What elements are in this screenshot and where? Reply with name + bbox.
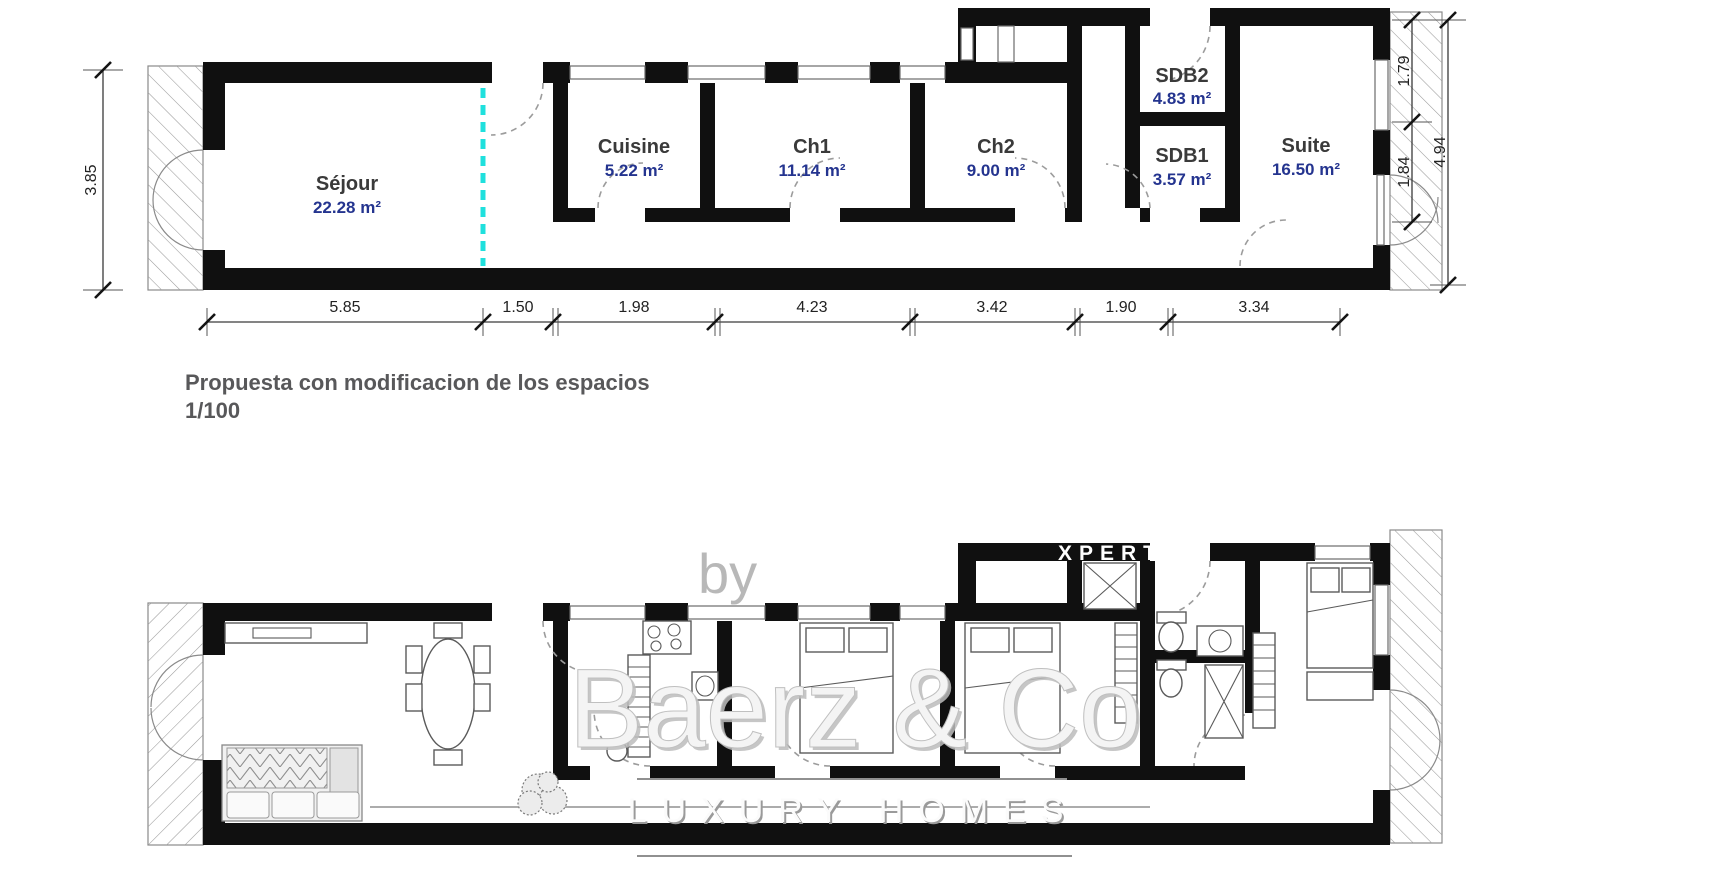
shower: [1084, 563, 1136, 609]
dim-494: 4.94: [1432, 136, 1449, 167]
sideboard: [225, 623, 367, 643]
dim-179: 1.79: [1396, 55, 1413, 86]
watermark-partner: XPERTS: [1058, 542, 1184, 565]
room-name-cuisine: Cuisine: [598, 136, 670, 158]
dim-423: 4.23: [796, 299, 827, 316]
floor-plan-drawing: Séjour 22.28 m² Cuisine 5.22 m² Ch1 11.1…: [0, 0, 1723, 896]
room-name-ch1: Ch1: [793, 136, 831, 158]
room-area-ch2: 9.00 m²: [967, 161, 1026, 180]
room-area-sejour: 22.28 m²: [313, 198, 381, 217]
radiator-2: [1253, 633, 1275, 728]
room-area-cuisine: 5.22 m²: [605, 161, 664, 180]
room-name-sejour: Séjour: [316, 173, 378, 195]
watermark-tagline: LUXURY HOMES: [628, 792, 1079, 830]
room-name-ch2: Ch2: [977, 136, 1015, 158]
room-name-suite: Suite: [1282, 135, 1331, 157]
terrace-right-current: [1390, 530, 1442, 843]
room-name-sdb2: SDB2: [1155, 65, 1208, 87]
dim-334: 3.34: [1238, 299, 1269, 316]
room-area-sdb1: 3.57 m²: [1153, 170, 1212, 189]
vanity-sink: [1197, 626, 1243, 656]
dim-342: 3.42: [976, 299, 1007, 316]
dim-150: 1.50: [502, 299, 533, 316]
dim-190: 1.90: [1105, 299, 1136, 316]
suite-bed: [1307, 563, 1373, 700]
dim-184: 1.84: [1396, 156, 1413, 187]
floor-plan-page: Séjour 22.28 m² Cuisine 5.22 m² Ch1 11.1…: [0, 0, 1723, 896]
caption-line2: 1/100: [185, 398, 240, 423]
caption-line1: Propuesta con modificacion de los espaci…: [185, 370, 650, 395]
room-area-suite: 16.50 m²: [1272, 160, 1340, 179]
watermark-brand: Baerz & Co: [569, 646, 1142, 771]
dim-198: 1.98: [618, 299, 649, 316]
terrace-left-current: [148, 603, 203, 845]
sofa: [222, 745, 362, 821]
dim-585: 5.85: [329, 299, 360, 316]
wardrobe: [1205, 665, 1243, 738]
dim-385: 3.85: [83, 164, 100, 195]
terrace-left: [148, 66, 203, 290]
room-area-ch1: 11.14 m²: [778, 161, 845, 180]
room-area-sdb2: 4.83 m²: [1153, 89, 1212, 108]
room-name-sdb1: SDB1: [1155, 145, 1208, 167]
watermark-by: by: [698, 542, 757, 605]
